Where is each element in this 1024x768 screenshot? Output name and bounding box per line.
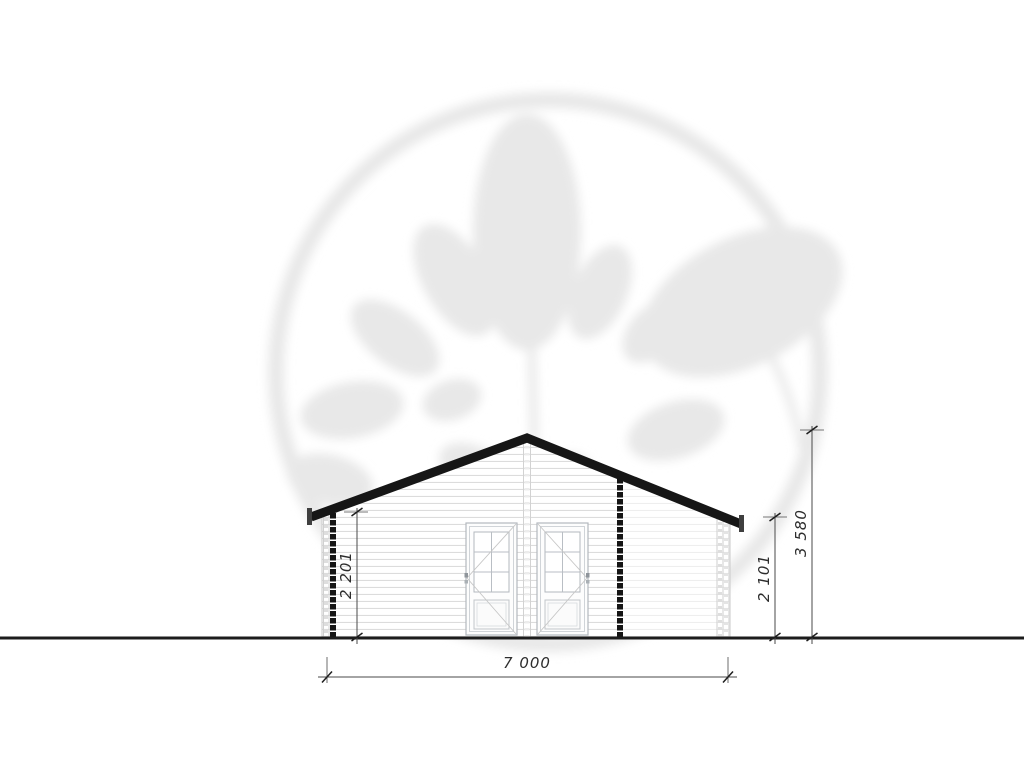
- elevation-drawing: [0, 0, 1024, 768]
- roof-eave-cap-right: [739, 515, 744, 532]
- elevation-drawing-canvas: 2 201 2 101 3 580 7 000: [0, 0, 1024, 768]
- facade-wall-right-section: [622, 481, 730, 637]
- door-left: [465, 523, 518, 635]
- dimension-label-left-wall-height: 2 201: [337, 551, 355, 599]
- door-left-handle: [465, 573, 469, 578]
- door-left-panel: [474, 600, 509, 629]
- door-right-handle: [586, 573, 590, 578]
- dimension-label-right-eave-height: 2 101: [755, 554, 773, 602]
- roof-eave-cap-left: [307, 508, 312, 525]
- watermark-leaf: [417, 372, 486, 429]
- door-right: [537, 523, 590, 635]
- house-facade: [307, 438, 744, 637]
- dimension-label-total-width: 7 000: [503, 654, 551, 672]
- watermark-leaf: [617, 196, 868, 408]
- watermark-leaf: [620, 388, 732, 472]
- door-right-panel: [545, 600, 580, 629]
- dimension-label-ridge-height: 3 580: [792, 509, 810, 557]
- watermark-leaf: [296, 373, 408, 446]
